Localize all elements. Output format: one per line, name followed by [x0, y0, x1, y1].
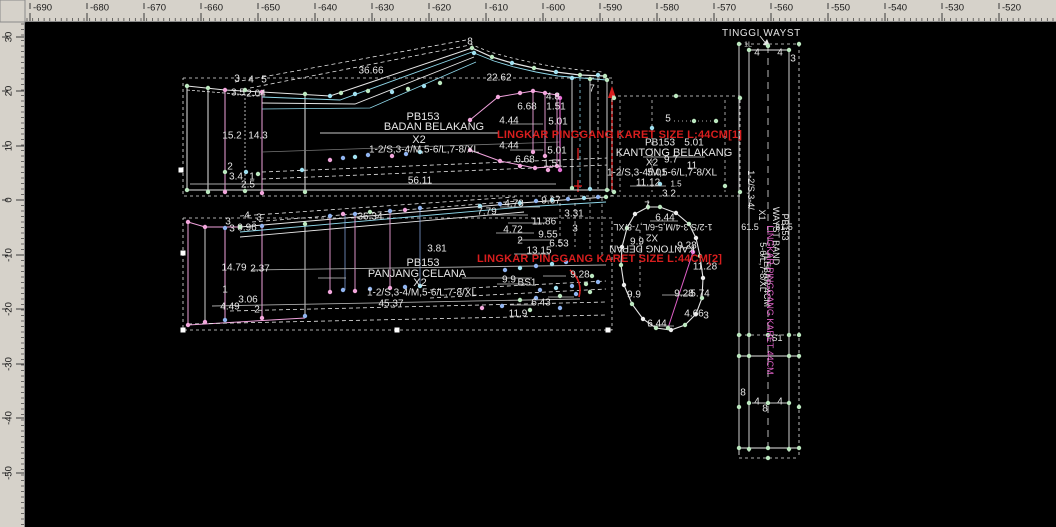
pattern-node[interactable] [766, 446, 770, 450]
measurement-label: 4 [754, 397, 760, 408]
pattern-node[interactable] [496, 95, 500, 99]
measurement-label: 61.5 [741, 222, 759, 232]
selection-handle[interactable] [606, 328, 611, 333]
pattern-node[interactable] [588, 187, 592, 191]
measurement-label: 4 [777, 48, 783, 59]
ruler-label: -580 [660, 3, 679, 14]
measurement-label: 14.3 [248, 131, 268, 142]
measurement-label: 3.2 [662, 189, 676, 200]
pattern-node[interactable] [701, 276, 705, 280]
pattern-node[interactable] [185, 84, 189, 88]
measurement-label: 4 [777, 397, 783, 408]
pattern-node[interactable] [533, 166, 537, 170]
ruler-label: -20 [4, 302, 15, 316]
ruler-label: -650 [261, 3, 280, 14]
pattern-node[interactable] [256, 172, 260, 176]
measurement-label: 1-2/S,3-4/M,5-6/L,7-8/XL [613, 222, 712, 232]
pattern-node[interactable] [747, 333, 751, 337]
measurement-label: LINGKAR PINGGANG KARET 44CM [765, 225, 775, 374]
pattern-node[interactable] [328, 94, 332, 98]
pattern-node[interactable] [303, 222, 307, 226]
pattern-node[interactable] [406, 87, 410, 91]
pattern-node[interactable] [584, 282, 588, 286]
measurement-label: 4.44 [499, 141, 519, 152]
measurement-label: 4.73 [504, 199, 524, 210]
pattern-node[interactable] [566, 197, 570, 201]
pattern-node[interactable] [300, 168, 304, 172]
pattern-node[interactable] [747, 354, 751, 358]
ruler-label: 30 [4, 32, 15, 43]
measurement-label: BADAN BELAKANG [384, 121, 484, 133]
measurement-label: 1-2/S,3-4/ [746, 170, 756, 210]
measurement-label: 2.37 [250, 264, 270, 275]
pattern-node[interactable] [737, 354, 741, 358]
pattern-node[interactable] [797, 42, 801, 46]
pattern-node[interactable] [353, 289, 357, 293]
pattern-cad-window: 3453.52.0415.214.323.412.536.66822.62756… [0, 0, 1056, 527]
pattern-node[interactable] [787, 333, 791, 337]
ruler-label: -40 [4, 411, 15, 425]
pattern-node[interactable] [596, 73, 600, 77]
pattern-node[interactable] [388, 209, 392, 213]
horizontal-ruler: -690-680-670-660-650-640-630-620-610-600… [25, 0, 1056, 22]
pattern-node[interactable] [630, 302, 634, 306]
pattern-node[interactable] [787, 447, 791, 451]
measurement-label: 3.81 [427, 244, 447, 255]
ruler-label: -670 [147, 3, 166, 14]
ruler-label: -560 [774, 3, 793, 14]
ruler-label: -630 [375, 3, 394, 14]
pattern-node[interactable] [737, 333, 741, 337]
measurement-label: 9.9 [627, 290, 641, 301]
measurement-label: 7.79 [477, 207, 497, 218]
pattern-node[interactable] [518, 266, 522, 270]
drawing-canvas[interactable] [0, 0, 1056, 527]
selection-handle[interactable] [179, 168, 184, 173]
pattern-node[interactable] [223, 88, 227, 92]
selection-handle[interactable] [395, 328, 400, 333]
pattern-node[interactable] [698, 254, 702, 258]
ruler-label: -610 [489, 3, 508, 14]
measurement-label: 6.44 [655, 213, 675, 224]
ruler-label: -540 [888, 3, 907, 14]
pattern-node[interactable] [353, 155, 357, 159]
measurement-label: 22.62 [486, 73, 511, 84]
measurement-label: 4 [754, 48, 760, 59]
measurement-label: 2 [254, 305, 260, 316]
measurement-label: 3 [572, 224, 578, 235]
measurement-label: BS1 [518, 278, 537, 289]
pattern-node[interactable] [498, 159, 502, 163]
measurement-label: 5.01 [548, 117, 568, 128]
pattern-node[interactable] [550, 262, 554, 266]
measurement-label: 8 [740, 388, 746, 399]
measurement-label: 9.9 [502, 275, 516, 286]
vertical-ruler-bg [0, 22, 25, 527]
measurement-label: 3 [229, 224, 235, 235]
pattern-node[interactable] [574, 292, 578, 296]
measurement-label: 36.34 [357, 212, 382, 223]
pattern-node[interactable] [787, 354, 791, 358]
measurement-label: 1.5 [670, 180, 682, 189]
ruler-label: -620 [432, 3, 451, 14]
pattern-node[interactable] [737, 446, 741, 450]
pattern-node[interactable] [766, 456, 770, 460]
pattern-node[interactable] [578, 73, 582, 77]
measurement-label: 3 [234, 74, 240, 85]
measurement-label: X1 [757, 209, 767, 220]
pattern-node[interactable] [747, 447, 751, 451]
measurement-label: 6.44 [647, 319, 667, 330]
pattern-node[interactable] [723, 184, 727, 188]
measurement-label: S1 [771, 333, 782, 343]
measurement-label: 9.7 [664, 155, 678, 166]
pattern-node[interactable] [390, 90, 394, 94]
pattern-node[interactable] [554, 286, 558, 290]
vertical-ruler: 3020100-10-20-30-40-50 [0, 22, 25, 527]
pattern-node[interactable] [353, 92, 357, 96]
pattern-node[interactable] [223, 318, 227, 322]
pattern-node[interactable] [622, 283, 626, 287]
measurement-label: 3.31 [564, 209, 584, 220]
measurement-label: 3 [790, 54, 796, 65]
pattern-node[interactable] [797, 446, 801, 450]
measurement-label: 11.12 [636, 178, 661, 189]
measurement-label: 5 [261, 75, 267, 86]
pattern-node[interactable] [766, 44, 770, 48]
pattern-node[interactable] [518, 91, 522, 95]
measurement-label: 9.28 [570, 270, 590, 281]
pattern-node[interactable] [612, 190, 616, 194]
pattern-node[interactable] [366, 89, 370, 93]
pattern-node[interactable] [603, 74, 607, 78]
pattern-node[interactable] [582, 196, 586, 200]
pattern-node[interactable] [203, 320, 207, 324]
measurement-label: 45.37 [378, 299, 403, 310]
pattern-node[interactable] [303, 190, 307, 194]
measurement-label: 8 [762, 404, 768, 415]
pattern-canvas[interactable]: 3453.52.0415.214.323.412.536.66822.62756… [0, 0, 1056, 527]
pattern-node[interactable] [596, 195, 600, 199]
measurement-label: 11.28 [693, 262, 718, 273]
pattern-node[interactable] [737, 405, 741, 409]
pattern-node[interactable] [570, 186, 574, 190]
measurement-label: 15.2 [222, 131, 242, 142]
pattern-node[interactable] [328, 214, 332, 218]
measurement-label: 7 [589, 84, 595, 95]
ruler-label: -520 [1002, 3, 1021, 14]
pattern-node[interactable] [518, 298, 522, 302]
measurement-label: 11.86 [532, 217, 557, 228]
pattern-node[interactable] [185, 188, 189, 192]
pattern-node[interactable] [260, 191, 264, 195]
pattern-node[interactable] [328, 290, 332, 294]
pattern-node[interactable] [260, 224, 264, 228]
pattern-node[interactable] [558, 306, 562, 310]
measurement-label: 6.53 [549, 239, 569, 250]
pattern-node[interactable] [206, 190, 210, 194]
selection-handle[interactable] [181, 328, 186, 333]
measurement-label: 11.9 [509, 309, 528, 320]
measurement-label: 6.68 [515, 155, 535, 166]
pattern-node[interactable] [604, 195, 608, 199]
pattern-node[interactable] [538, 288, 542, 292]
pattern-node[interactable] [570, 76, 574, 80]
measurement-label: 8 [467, 37, 473, 48]
pattern-node[interactable] [554, 70, 558, 74]
ruler-label: -660 [204, 3, 223, 14]
pattern-node[interactable] [605, 78, 609, 82]
measurement-label: X2 [645, 232, 658, 243]
pattern-node[interactable] [619, 263, 623, 267]
pattern-node[interactable] [558, 294, 562, 298]
pattern-node[interactable] [612, 96, 616, 100]
pattern-node[interactable] [787, 401, 791, 405]
pattern-node[interactable] [500, 304, 504, 308]
pattern-node[interactable] [596, 280, 600, 284]
pattern-node[interactable] [747, 401, 751, 405]
pattern-node[interactable] [737, 42, 741, 46]
pattern-node[interactable] [531, 89, 535, 93]
pattern-node[interactable] [692, 119, 696, 123]
measurement-label: 13.15 [526, 246, 551, 257]
ruler-label: -550 [831, 3, 850, 14]
pattern-node[interactable] [328, 158, 332, 162]
pattern-node[interactable] [797, 333, 801, 337]
pattern-node[interactable] [787, 48, 791, 52]
measurement-label: 6.68 [517, 102, 537, 113]
ruler-label: -590 [603, 3, 622, 14]
pattern-node[interactable] [738, 190, 742, 194]
pattern-node[interactable] [738, 96, 742, 100]
pattern-node[interactable] [490, 55, 494, 59]
measurement-label: 9.67 [541, 196, 561, 207]
pattern-node[interactable] [658, 205, 662, 209]
measurement-label: 0.96 [237, 223, 257, 234]
pattern-node[interactable] [438, 81, 442, 85]
pattern-node[interactable] [472, 51, 476, 55]
measurement-label: 4 [248, 75, 254, 86]
measurement-label: 3.5 [231, 88, 245, 99]
pattern-node[interactable] [303, 314, 307, 318]
pattern-node[interactable] [244, 170, 248, 174]
measurement-label: 6.43 [531, 298, 551, 309]
ruler-label: 20 [4, 86, 15, 97]
measurement-label: 3 [256, 213, 262, 224]
pattern-node[interactable] [480, 306, 484, 310]
pattern-node[interactable] [588, 77, 592, 81]
pattern-node[interactable] [590, 274, 594, 278]
ruler-label: -600 [546, 3, 565, 14]
measurement-label: 1 [222, 285, 228, 296]
selection-handle[interactable] [181, 251, 186, 256]
pattern-node[interactable] [260, 316, 264, 320]
pattern-node[interactable] [605, 188, 609, 192]
measurement-label: 5.74 [690, 289, 710, 300]
ruler-label: -50 [4, 466, 15, 480]
measurement-label: 5.01 [547, 146, 567, 157]
measurement-label: 4.49 [220, 302, 240, 313]
pattern-node[interactable] [683, 323, 687, 327]
pattern-node[interactable] [341, 156, 345, 160]
pattern-node[interactable] [570, 284, 574, 288]
pattern-node[interactable] [186, 220, 190, 224]
measurement-label: 7 [644, 201, 650, 212]
ruler-label: -640 [318, 3, 337, 14]
pattern-node[interactable] [797, 405, 801, 409]
pattern-node[interactable] [223, 190, 227, 194]
pattern-node[interactable] [534, 199, 538, 203]
measurement-label: 3 [703, 311, 709, 322]
measurement-label: 36.66 [358, 66, 383, 77]
ruler-label: -30 [4, 357, 15, 371]
measurement-label: 1.51 [546, 102, 566, 113]
ruler-label: -530 [945, 3, 964, 14]
pattern-node[interactable] [341, 212, 345, 216]
pattern-node[interactable] [564, 260, 568, 264]
ruler-label: -690 [33, 3, 52, 14]
pattern-node[interactable] [206, 86, 210, 90]
measurement-label: 2 [517, 236, 523, 247]
measurement-label: 4.72 [503, 225, 523, 236]
measurement-label: 2.5 [241, 180, 255, 191]
measurement-label: 4.66 [684, 309, 704, 320]
measurement-label: 14.79 [221, 263, 246, 274]
ruler-label: -680 [90, 3, 109, 14]
pattern-node[interactable] [422, 84, 426, 88]
measurement-label: 2.04 [246, 89, 266, 100]
ruler-label: -10 [4, 248, 15, 262]
pattern-node[interactable] [674, 94, 678, 98]
pattern-node[interactable] [510, 61, 514, 65]
measurement-label: 4 [244, 211, 250, 222]
pattern-node[interactable] [588, 290, 592, 294]
pattern-node[interactable] [498, 202, 502, 206]
pattern-node[interactable] [303, 92, 307, 96]
measurement-label: KANTONG DEPAN [609, 243, 695, 254]
ruler-corner [0, 0, 25, 22]
pattern-node[interactable] [633, 212, 637, 216]
measurement-label: 1L [744, 42, 752, 49]
measurement-label: 1-2/S,3-4/M,5-6/L,7-8/XL [369, 145, 479, 156]
pattern-node[interactable] [714, 119, 718, 123]
pattern-node[interactable] [186, 323, 190, 327]
measurement-label: PB153 [780, 213, 790, 240]
pattern-node[interactable] [534, 264, 538, 268]
measurement-label: 56.11 [408, 176, 433, 187]
pattern-node[interactable] [532, 66, 536, 70]
ruler-corner-box [0, 0, 25, 22]
ruler-label: 0 [4, 197, 15, 202]
measurement-label: 1-2/S,3-4/M,5-6/L,7-8/XL [367, 288, 477, 299]
pattern-node[interactable] [403, 208, 407, 212]
pattern-node[interactable] [641, 317, 645, 321]
pattern-node[interactable] [797, 354, 801, 358]
measurement-label: 4.44 [499, 116, 519, 127]
pattern-node[interactable] [339, 91, 343, 95]
measurement-label: 5 [665, 114, 671, 125]
pattern-node[interactable] [203, 225, 207, 229]
measurement-label: 1.51 [543, 159, 563, 170]
pattern-node[interactable] [650, 126, 654, 130]
pattern-node[interactable] [503, 268, 507, 272]
ruler-label: 10 [4, 141, 15, 152]
pattern-node[interactable] [418, 206, 422, 210]
pattern-node[interactable] [341, 288, 345, 292]
ruler-label: -570 [717, 3, 736, 14]
